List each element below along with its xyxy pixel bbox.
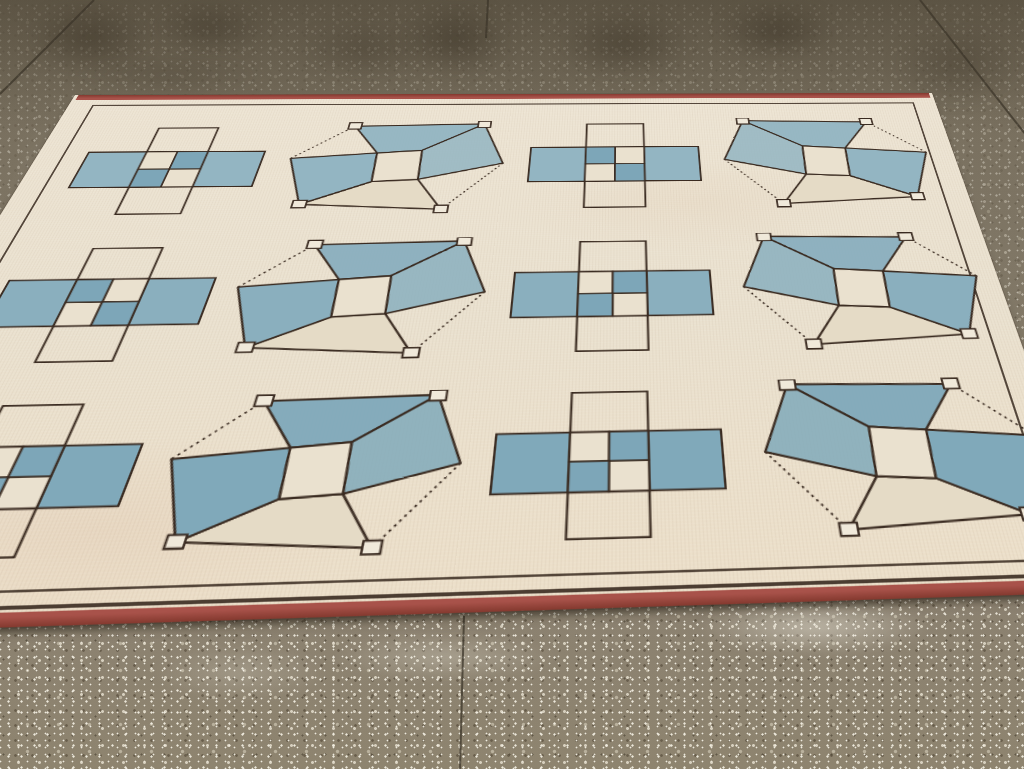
rug-surface xyxy=(0,93,1024,636)
rug-motif-quincunx-r3c3 xyxy=(483,388,733,544)
rug-motif-cube-r1c4 xyxy=(717,117,946,208)
rug-motif-cube-r1c2 xyxy=(268,121,511,215)
rug-motif-quincunx-r1c1 xyxy=(51,127,277,217)
rug-motif-cube-r3c4 xyxy=(753,375,1024,540)
rug-motif-quincunx-r2c1 xyxy=(0,246,230,366)
rug-field xyxy=(0,93,1024,636)
rug-motif-quincunx-r1c3 xyxy=(523,123,705,210)
photo-scene xyxy=(0,0,1024,769)
rug-motif-cube-r2c2 xyxy=(207,237,494,363)
floor-expansion-joint-line xyxy=(486,0,488,38)
floor-expansion-joint-line xyxy=(460,616,464,769)
rug xyxy=(0,93,1024,636)
floor-expansion-joint-line xyxy=(0,0,94,94)
rug-motif-quincunx-r2c3 xyxy=(505,239,719,354)
rug-motif-cube-r3c2 xyxy=(129,389,473,564)
rug-motif-cube-r2c4 xyxy=(735,231,1004,352)
